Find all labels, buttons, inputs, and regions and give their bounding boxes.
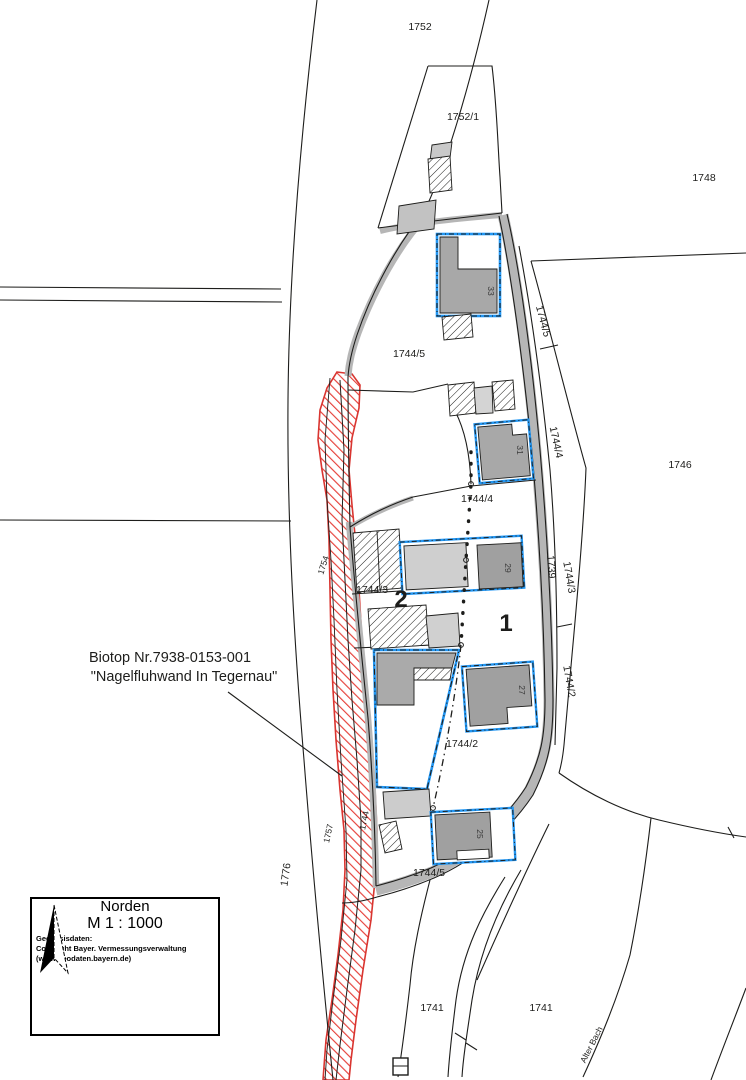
- house-number: 31: [515, 445, 525, 455]
- house-number: 25: [475, 829, 485, 839]
- building-hatched-upper: [353, 529, 403, 592]
- parcel-label: 1744/2: [560, 665, 577, 699]
- house-number: 33: [486, 286, 496, 296]
- building-tilted-hatched: [379, 821, 402, 853]
- parcel-label: 1741: [529, 1002, 553, 1014]
- parcel-label: 1776: [278, 862, 293, 887]
- building-33: [437, 234, 500, 316]
- building-row-hatched-a: [448, 382, 476, 416]
- building-shed-hatched: [428, 156, 452, 193]
- scale-label: M 1 : 1000: [87, 915, 163, 933]
- zone-number-2: 2: [394, 586, 407, 613]
- parcel-label: 1744/5: [393, 348, 425, 360]
- parcel-label: 1744/2: [446, 738, 478, 750]
- biotope-annotation-line2: "Nagelfluhwand In Tegernau": [91, 669, 278, 685]
- house-number: 29: [503, 563, 513, 573]
- parcel-label: 1744/4: [461, 493, 493, 505]
- parcel-label: 1746: [668, 459, 692, 471]
- parcel-label: 1754: [315, 554, 330, 575]
- biotope-annotation-line1: Biotop Nr.7938-0153-001: [89, 650, 251, 666]
- building-barn-gray: [397, 200, 436, 234]
- zone-number-1: 1: [499, 610, 512, 637]
- building-hatched-lower: [368, 605, 460, 649]
- building-small-gray: [383, 789, 431, 819]
- house-number: 27: [517, 685, 527, 695]
- north-label: Norden: [100, 899, 149, 915]
- biotope-leader-line: [228, 692, 342, 776]
- parcel-label: 1752/1: [447, 111, 479, 123]
- parcel-label: 1744/3: [560, 561, 577, 595]
- parcel-label: 1757: [321, 823, 335, 844]
- parcel-label: 1744/4: [547, 425, 565, 459]
- parcel-label: 1752: [408, 21, 432, 33]
- small-outbuilding: [393, 1058, 408, 1075]
- north-arrow-icon: [32, 903, 76, 977]
- cadastral-map-page: 1752 1752/1 1748 1746 1744/5 1744/5 1744…: [0, 0, 746, 1080]
- parcel-label: 1744/5: [533, 304, 553, 338]
- building-large-blue: [374, 650, 459, 789]
- building-row-hatched-b: [492, 380, 515, 411]
- building-row-gray: [474, 386, 493, 414]
- parcel-label: 1744/5: [413, 867, 445, 879]
- building-27: [462, 662, 537, 732]
- parcel-label: 1741: [420, 1002, 444, 1014]
- map-legend: Norden M 1 : 1000 Geobasisdaten: Copyrig…: [30, 897, 220, 1036]
- parcel-label: 1744/3: [356, 584, 388, 596]
- building-annex-hatched: [442, 314, 473, 340]
- building-25: [431, 808, 516, 864]
- parcel-label: 1748: [692, 172, 716, 184]
- parcel-label: 1739: [544, 555, 558, 579]
